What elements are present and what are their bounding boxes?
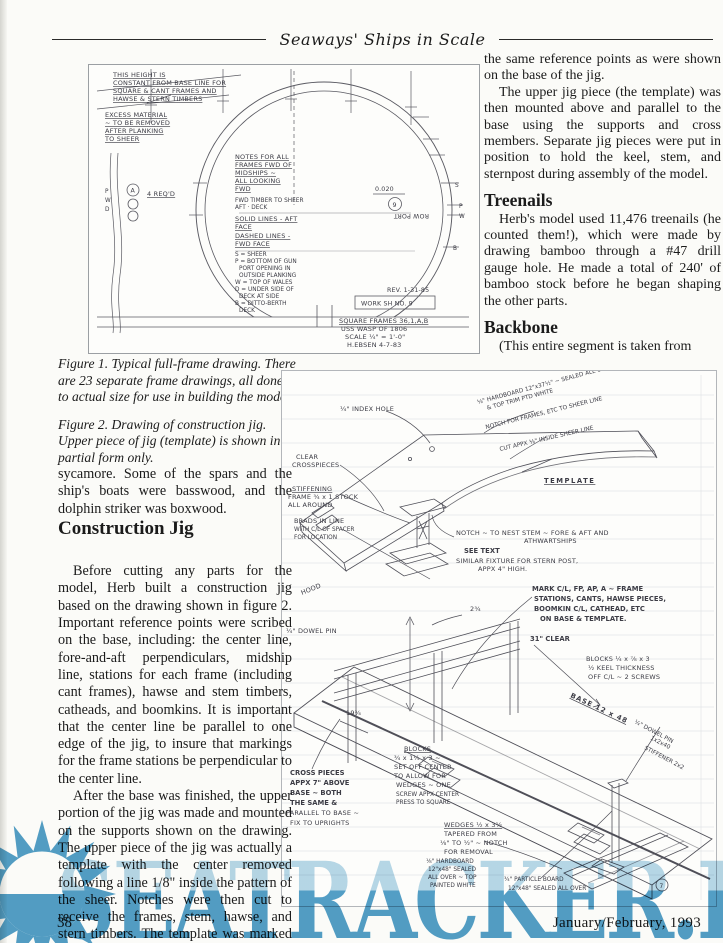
fig2-label-line: ¾" PARTICLE BOARD — [504, 877, 564, 883]
fig1-note-line: ~ TO BE REMOVED — [105, 119, 170, 127]
fig1-legend-line: D = UNDER SIDE OF — [235, 287, 294, 293]
fig1-legend: S = SHEER P = BOTTOM OF GUN PORT OPENING… — [235, 252, 297, 314]
fig1-note-line: EXCESS MATERIAL — [105, 111, 167, 119]
fig1-note-line: FACE — [235, 223, 252, 231]
fig2-label-line: ON BASE & TEMPLATE. — [540, 615, 626, 623]
fig1-reqd-label: 4 REQ'D — [147, 190, 175, 198]
fig1-worksheet-label: WORK SH NO. 9 — [361, 301, 413, 308]
figure2-caption: Figure 2. Drawing of construction jig. U… — [58, 417, 296, 467]
fig2-stem-fixture — [386, 499, 448, 576]
fig2-clear31-label: 31" CLEAR — [530, 635, 571, 643]
fig2-leader-lines — [312, 411, 660, 879]
fig1-title-line: USS WASP OF 1806 — [341, 325, 407, 333]
fig1-note-line: NOTES FOR ALL — [235, 153, 289, 161]
header-rule-left — [52, 39, 266, 40]
fig1-note-line: FWD FACE — [235, 240, 270, 248]
fig1-legend-line: W = TOP OF WALES — [235, 280, 293, 286]
fig2-label-line: STIFFENER 2x2 — [643, 745, 685, 771]
fig2-label-line: NOTCH ~ TO NEST STEM ~ FORE & AFT AND — [456, 529, 609, 537]
fig2-label-line: ½ KEEL THICKNESS — [588, 664, 655, 672]
fig2-label-line: CROSSPIECES — [292, 461, 339, 469]
left-column: sycamore. Some of the spars and the ship… — [58, 466, 292, 943]
fig2-label-line: FOR REMOVAL — [444, 848, 493, 856]
body-paragraph: (This entire segment is taken from — [484, 339, 721, 355]
fig1-note-line: FWD TIMBER TO SHEER — [235, 198, 303, 204]
fig1-note-line: SQUARE & CANT FRAMES AND — [113, 87, 217, 95]
fig2-see-text-label: SEE TEXT — [464, 547, 500, 555]
fig2-hardboard-top-label: ⅛" HARDBOARD 12"x37½" ~ SEALED ALL OVER … — [476, 371, 615, 414]
journal-title: Seaways' Ships in Scale — [266, 30, 500, 49]
figure1-frame-drawing: THIS HEIGHT IS CONSTANT FROM BASE LINE F… — [88, 64, 480, 354]
fig2-template-label: TEMPLATE — [544, 477, 595, 485]
fig1-note-line: CONSTANT FROM BASE LINE FOR — [113, 79, 226, 87]
fig2-label-line: ATHWARTSHIPS — [524, 537, 577, 545]
fig2-dim-1934: 19¾ — [346, 709, 362, 717]
figure1-caption: Figure 1. Typical full-frame drawing. Th… — [58, 356, 296, 406]
fig2-label-line: BRADS IN LINE — [294, 517, 344, 525]
right-column: the same reference points as were shown … — [484, 52, 721, 355]
figure2-jig-drawing: ¼" INDEX HOLE ⅛" HARDBOARD 12"x37½" ~ SE… — [281, 370, 717, 907]
fig2-label-line: PAINTED WHITE — [430, 883, 476, 889]
page-header: Seaways' Ships in Scale — [52, 30, 713, 49]
fig1-dim-0020: 0.020 — [375, 186, 394, 193]
fig2-label-line: APPX 4" HIGH. — [478, 565, 527, 573]
fig2-label-line: ALL AROUND — [288, 501, 332, 509]
fig2-label-line: STIFFENING — [292, 485, 332, 493]
magazine-page: Seaways' Ships in Scale — [0, 0, 723, 943]
scan-edge — [0, 0, 7, 943]
fig2-label-line: SCREW APPX CENTER — [396, 792, 459, 798]
fig2-label-line: BOOMKIN C/L, CATHEAD, ETC — [534, 605, 645, 613]
fig1-legend-line: DECK — [239, 308, 255, 314]
fig1-legend-line: PORT OPENING IN — [239, 266, 291, 272]
fig2-label-line: 12"x48" SEALED — [428, 867, 477, 873]
fig2-cut-appx-label: CUT APPX ⅛" INSIDE SHEER LINE — [499, 425, 594, 453]
fig2-labels: ¼" INDEX HOLE ⅛" HARDBOARD 12"x37½" ~ SE… — [286, 371, 685, 892]
fig2-dim-234: 2¾ — [470, 605, 481, 613]
fig2-label-line: ¾ x 1¼ x 3 ~ — [394, 754, 441, 762]
fig2-label-line: PRESS TO SQUARE — [396, 800, 451, 806]
fig1-note-line: FWD — [235, 185, 251, 193]
body-paragraph: sycamore. Some of the spars and the ship… — [58, 466, 292, 518]
fig2-label-line: OFF C/L ~ 2 SCREWS — [588, 673, 660, 681]
fig1-note-line: TO SHEER — [104, 135, 140, 143]
page-number: 38 — [57, 915, 72, 932]
fig2-label-line: ALL OVER ~ TOP — [428, 875, 477, 881]
figure-captions: Figure 1. Typical full-frame drawing. Th… — [58, 356, 296, 478]
body-paragraph: Herb's model used 11,476 treenails (he c… — [484, 212, 721, 310]
footer-date: January/February, 1993 — [553, 915, 701, 932]
fig1-note-line: ALL LOOKING — [235, 177, 281, 185]
fig2-label-line: BLOCKS — [404, 745, 431, 753]
fig2-label-line: WEDGES ½ x 3½ — [444, 821, 502, 829]
fig1-note-line: SOLID LINES - AFT — [235, 215, 297, 223]
fig1-marker-a: A — [131, 188, 136, 195]
fig2-label-line: CLEAR — [296, 453, 319, 461]
figure2-svg: ¼" INDEX HOLE ⅛" HARDBOARD 12"x37½" ~ SE… — [282, 371, 714, 904]
fig2-base-dim-label: BASE 12 x 48 — [569, 692, 629, 726]
fig1-note-line: MIDSHIPS ~ — [235, 169, 276, 177]
fig1-letter: P — [459, 204, 463, 210]
fig1-legend-line: S = SHEER — [235, 252, 267, 258]
fig2-label-line: ⅛" HARDBOARD — [426, 859, 474, 865]
fig1-title-line: SQUARE FRAMES 36,1,A,B — [339, 317, 428, 325]
construction-jig-heading: Construction Jig — [58, 520, 292, 537]
fig1-note-line: AFT · DECK — [235, 205, 267, 211]
body-paragraph: Before cutting any parts for the model, … — [58, 563, 292, 788]
header-rule-right — [499, 39, 713, 40]
fig2-label-line: TAPERED FROM — [443, 830, 497, 838]
fig2-hood-label: HOOD — [300, 582, 322, 597]
fig2-label-line: 12"x48" SEALED ALL OVER — [508, 886, 586, 892]
fig1-row-port-label: ROW PORT — [394, 212, 429, 219]
fig1-letter: B — [453, 246, 457, 252]
fig2-label-line: FOR LOCATION — [294, 535, 337, 541]
fig2-label-line: FRAME ¾ x 1 STOCK — [288, 493, 359, 501]
fig2-label-line: THE SAME & — [290, 799, 337, 807]
fig1-height-note: THIS HEIGHT IS CONSTANT FROM BASE LINE F… — [112, 71, 226, 103]
fig1-title-line: SCALE ¼" = 1'-0" — [345, 333, 405, 341]
body-paragraph: The upper jig piece (the template) was t… — [484, 85, 721, 183]
fig1-note-line: HAWSE & STERN TIMBERS — [113, 95, 202, 103]
fig1-legend-line: P = BOTTOM OF GUN — [235, 259, 297, 265]
fig2-label-line: PARALLEL TO BASE ~ — [286, 809, 359, 817]
fig1-frames-note: NOTES FOR ALL FRAMES FWD OF MIDSHIPS ~ A… — [235, 153, 303, 248]
fig1-rev-label: REV. 1-31-85 — [387, 287, 429, 294]
fig2-label-line: ⅛" TO ½" ~ NOTCH — [440, 839, 508, 847]
fig1-note-line: DASHED LINES - — [235, 232, 291, 240]
fig1-legend-line: OUTSIDE PLANKING — [239, 273, 297, 279]
fig2-label-line: BASE ~ BOTH — [290, 789, 342, 797]
fig1-excess-note: EXCESS MATERIAL ~ TO BE REMOVED AFTER PL… — [104, 111, 170, 143]
fig1-letter: D — [105, 207, 110, 213]
fig2-circled7-text: 7 — [660, 884, 664, 890]
fig1-legend-line: B = DITTO-BERTH — [235, 301, 286, 307]
fig1-note-line: FRAMES FWD OF — [235, 161, 292, 169]
fig2-label-line: CROSS PIECES — [290, 769, 345, 777]
fig2-label-line: WEDGES ~ ONE — [396, 781, 451, 789]
fig2-label-line: APPX 7" ABOVE — [290, 779, 350, 787]
fig2-label-line: SIMILAR FIXTURE FOR STERN POST, — [456, 557, 578, 565]
fig1-note-line: AFTER PLANKING — [105, 127, 164, 135]
fig2-index-hole-label: ¼" INDEX HOLE — [340, 405, 394, 413]
fig2-label-line: TO ALLOW FOR — [393, 772, 446, 780]
figure1-svg: THIS HEIGHT IS CONSTANT FROM BASE LINE F… — [89, 65, 477, 351]
fig1-letter: W — [105, 198, 111, 204]
fig2-label-line: MARK C/L, FP, AP, A ~ FRAME — [532, 585, 643, 593]
fig1-title-line: H.EBSEN 4-7-83 — [347, 341, 402, 349]
fig1-frame-number: 9 — [393, 202, 397, 209]
fig1-legend-line: DECK AT SIDE — [239, 294, 280, 300]
body-paragraph: After the base was finished, the upper p… — [58, 788, 292, 943]
fig1-note-line: THIS HEIGHT IS — [112, 71, 166, 79]
fig2-label-line: FIX TO UPRIGHTS — [290, 819, 349, 827]
fig2-label-line: SET OFF CENTER — [394, 763, 452, 771]
fig2-label-line: WITH C/L OF SPACER — [294, 527, 354, 533]
fig2-crosspieces-uprights — [334, 619, 520, 763]
fig2-label-line: BLOCKS ¼ x ⅞ x 3 — [586, 655, 650, 663]
fig2-label-line: STATIONS, CANTS, HAWSE PIECES, — [534, 595, 666, 603]
fig1-letter: W — [459, 214, 465, 220]
body-paragraph: the same reference points as were shown … — [484, 52, 721, 85]
treenails-heading: Treenails — [484, 192, 721, 208]
backbone-heading: Backbone — [484, 319, 721, 335]
fig1-letter: P — [105, 189, 109, 195]
fig2-dowel-left-label: ¼" DOWEL PIN — [286, 627, 337, 635]
fig1-letter: S — [455, 183, 459, 189]
